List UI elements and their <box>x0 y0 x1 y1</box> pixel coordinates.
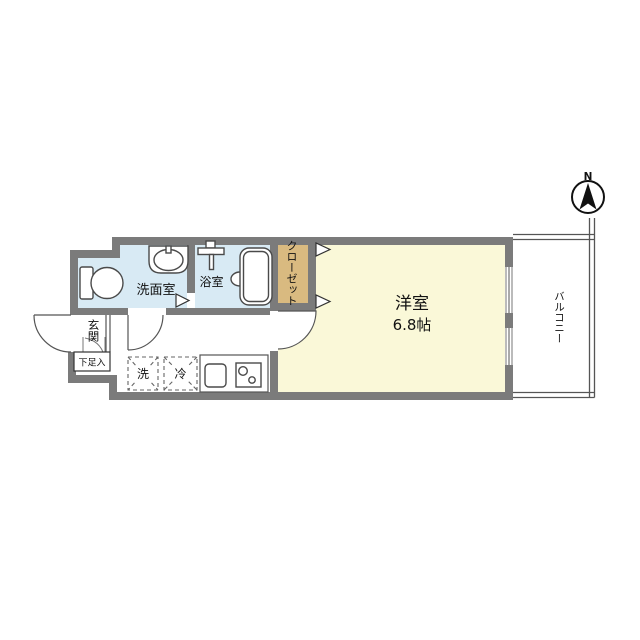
bathroom-label: 浴室 <box>199 274 223 289</box>
balcony-window-lower <box>505 328 513 365</box>
toilet <box>80 267 123 299</box>
kitchen-counter <box>200 355 268 392</box>
balcony-window-upper <box>505 267 513 313</box>
front-door-swing <box>34 315 71 352</box>
floor-plan-drawing: N 洋室 6.8帖 バルコニー クローゼット 浴室 洗面室 玄関 下足入 洗 冷 <box>0 0 640 640</box>
main-room-size-label: 6.8帖 <box>393 316 432 334</box>
washroom-door-swing <box>128 315 163 350</box>
floor-plan: N 洋室 6.8帖 バルコニー クローゼット 浴室 洗面室 玄関 下足入 洗 冷 <box>0 0 640 640</box>
closet-label: クローゼット <box>285 240 298 306</box>
washroom-label: 洗面室 <box>136 282 175 298</box>
shoe-cabinet-label: 下足入 <box>78 358 105 369</box>
fridge-space-label: 冷 <box>174 367 186 381</box>
washbasin <box>149 246 188 273</box>
entrance-label: 玄関 <box>87 318 101 342</box>
main-room-label: 洋室 <box>395 294 429 314</box>
compass-north-icon <box>572 181 604 213</box>
balcony-label: バルコニー <box>553 291 565 344</box>
washer-space-label: 洗 <box>137 367 149 381</box>
compass-north-label: N <box>584 171 593 183</box>
